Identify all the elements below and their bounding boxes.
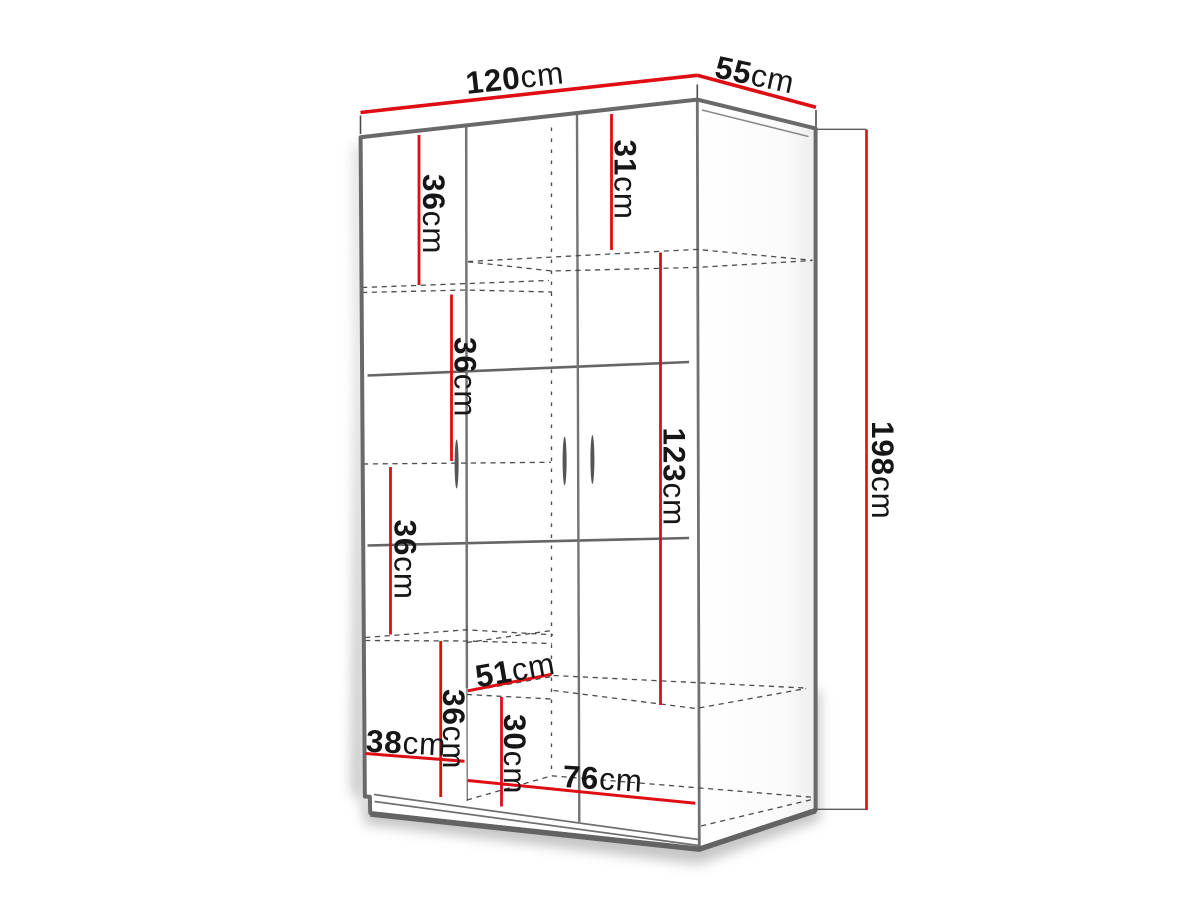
svg-text:36cm: 36cm bbox=[416, 174, 452, 254]
svg-text:36cm: 36cm bbox=[387, 520, 423, 600]
svg-text:120cm: 120cm bbox=[464, 54, 566, 101]
svg-text:31cm: 31cm bbox=[607, 140, 643, 220]
svg-text:30cm: 30cm bbox=[497, 714, 533, 794]
svg-text:38cm: 38cm bbox=[365, 723, 447, 763]
svg-text:76cm: 76cm bbox=[562, 758, 644, 799]
svg-text:55cm: 55cm bbox=[712, 49, 798, 101]
svg-text:36cm: 36cm bbox=[448, 337, 484, 417]
svg-text:123cm: 123cm bbox=[656, 428, 692, 527]
svg-text:198cm: 198cm bbox=[865, 421, 901, 520]
